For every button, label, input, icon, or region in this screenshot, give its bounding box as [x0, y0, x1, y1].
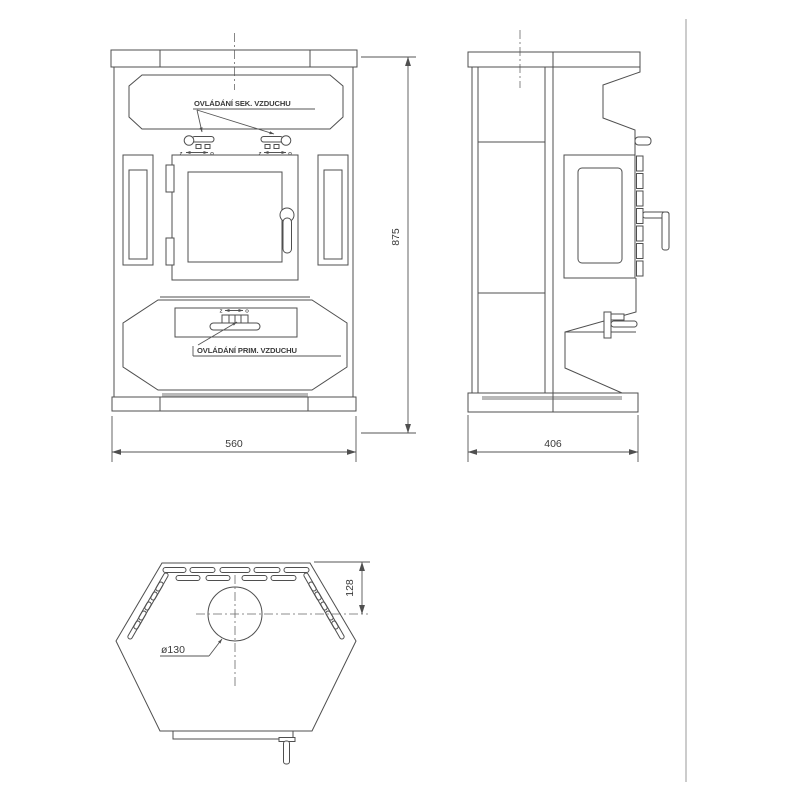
door-window-front [188, 172, 282, 262]
stove-drawing: OVLÁDÁNÍ SEK. VZDUCHU Z O Z O [0, 0, 800, 800]
secondary-air-lever-right: Z O [259, 136, 293, 156]
door-window-side [578, 168, 622, 263]
top-plate-side [468, 52, 640, 67]
technical-drawing-page: OVLÁDÁNÍ SEK. VZDUCHU Z O Z O [0, 0, 800, 800]
svg-text:O: O [245, 309, 249, 314]
left-glass-panel [123, 155, 153, 265]
primary-air-slider: Z O [210, 309, 260, 331]
flue-offset-dimension: 128 [314, 562, 370, 614]
top-view: ø130 [116, 563, 368, 764]
primary-air-label: OVLÁDÁNÍ PRIM. VZDUCHU [197, 346, 298, 355]
base-shadow-front [162, 393, 308, 397]
flue-diameter-label: ø130 [161, 644, 185, 656]
top-view-hexagon [116, 563, 356, 731]
svg-text:560: 560 [225, 438, 243, 450]
svg-text:406: 406 [544, 438, 562, 450]
vent-slots-left [127, 572, 169, 640]
handle-top-view [284, 741, 290, 764]
svg-text:Z: Z [220, 309, 223, 314]
door-front [166, 155, 298, 280]
door-hinge-strip-side [637, 156, 644, 276]
door-hinge-bottom [166, 238, 174, 265]
secondary-air-knob-side [635, 137, 651, 145]
secondary-air-lever-left: Z O [180, 136, 215, 156]
door-side [564, 155, 635, 278]
top-plate-front [111, 50, 357, 67]
side-view [468, 30, 669, 412]
svg-text:875: 875 [390, 228, 402, 246]
base-shadow-side [482, 396, 622, 400]
height-dimension: 875 [361, 57, 416, 433]
width-dimension: 560 [112, 416, 356, 462]
lower-octagon-panel [123, 300, 347, 390]
flue-diameter-callout: ø130 [160, 639, 222, 656]
grate-lever-side [604, 312, 637, 338]
vent-slots-top [163, 568, 309, 581]
base-plinth-front [112, 397, 356, 411]
depth-dimension: 406 [468, 415, 638, 462]
secondary-air-label: OVLÁDÁNÍ SEK. VZDUCHU [194, 99, 291, 108]
front-view: OVLÁDÁNÍ SEK. VZDUCHU Z O Z O [111, 33, 357, 411]
door-hinge-top [166, 165, 174, 192]
door-handle-side [643, 212, 669, 250]
front-bar-top-view [173, 731, 295, 764]
svg-text:128: 128 [344, 579, 356, 597]
right-glass-panel [318, 155, 348, 265]
vent-slots-right [303, 572, 345, 640]
door-frame-front [172, 155, 298, 280]
